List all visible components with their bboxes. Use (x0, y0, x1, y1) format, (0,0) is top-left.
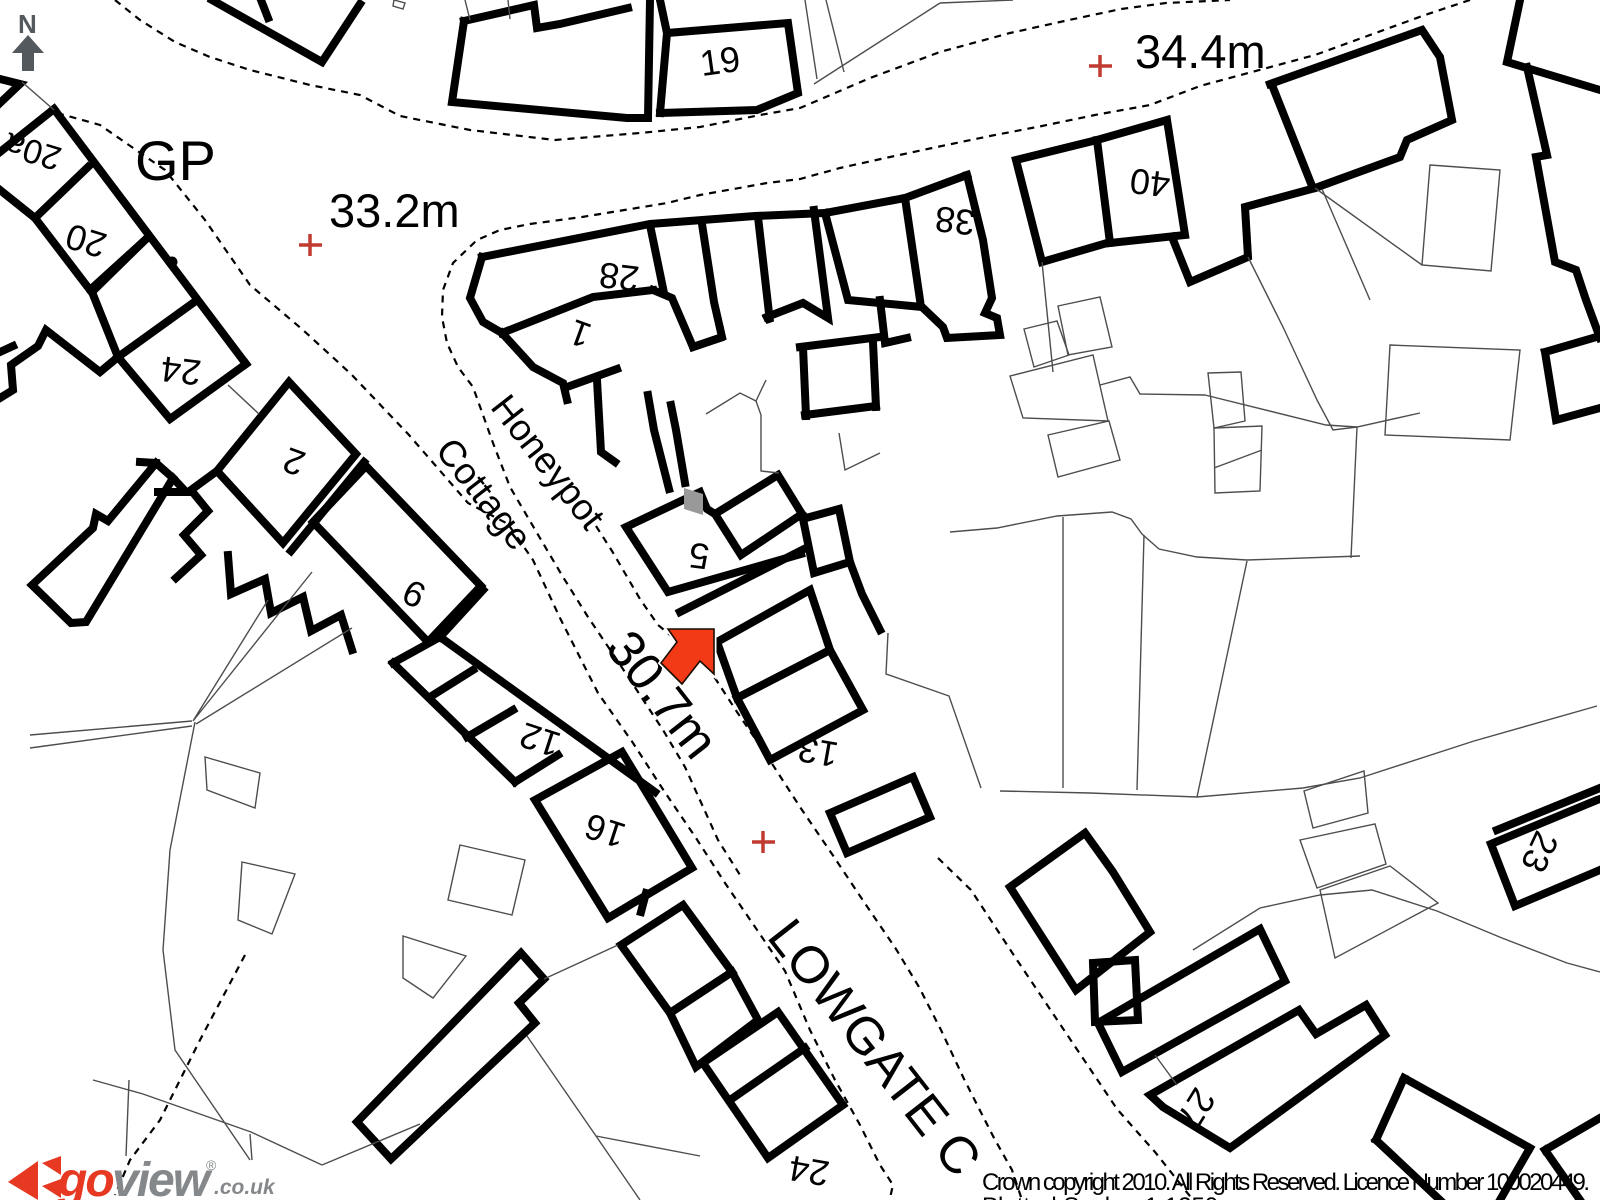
svg-text:N: N (18, 9, 37, 39)
svg-text:24: 24 (159, 348, 204, 394)
svg-text:go: go (57, 1154, 113, 1200)
svg-text:38: 38 (933, 198, 978, 244)
svg-text:33.2m: 33.2m (329, 184, 460, 237)
svg-text:24: 24 (786, 1147, 833, 1194)
svg-text:13: 13 (795, 728, 842, 775)
svg-text:®: ® (206, 1157, 217, 1173)
svg-text:.co.uk: .co.uk (214, 1176, 276, 1199)
svg-text:Crown copyright 2010. All Righ: Crown copyright 2010. All Rights Reserve… (982, 1169, 1590, 1196)
svg-text:19: 19 (697, 38, 742, 84)
svg-text:view: view (112, 1154, 213, 1200)
svg-text:34.4m: 34.4m (1135, 25, 1266, 78)
svg-text:28: 28 (597, 254, 642, 300)
svg-text:GP: GP (135, 129, 216, 192)
svg-text:40: 40 (1128, 160, 1173, 206)
svg-text:Plotted Scale - 1:1250: Plotted Scale - 1:1250 (982, 1193, 1218, 1200)
